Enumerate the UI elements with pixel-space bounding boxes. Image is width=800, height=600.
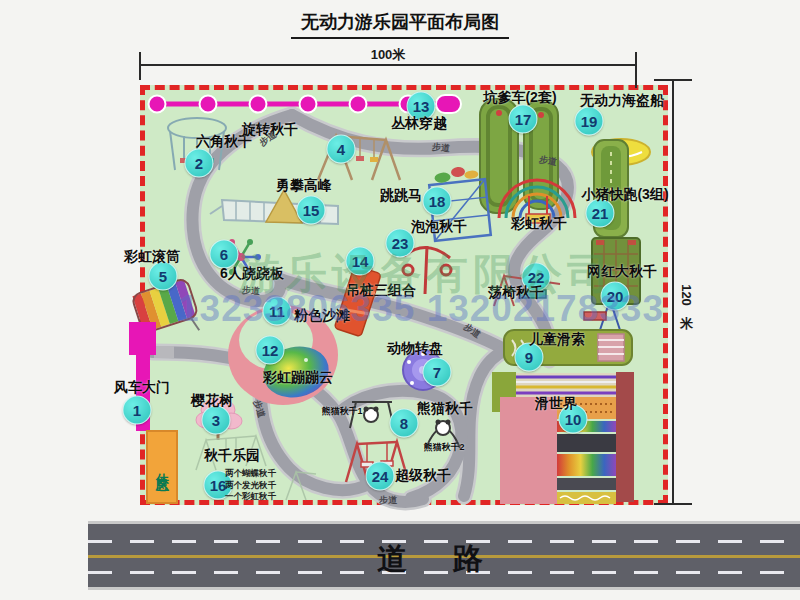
road-label: 道路 <box>377 539 529 580</box>
attraction-marker-17[interactable]: 17 <box>509 105 538 134</box>
park-map-area <box>140 85 668 505</box>
swing-note-line: 一个彩虹秋千 <box>225 491 276 503</box>
page-title: 无动力游乐园平面布局图 <box>291 10 509 39</box>
dimension-line-right <box>672 80 674 505</box>
attraction-marker-11[interactable]: 11 <box>263 297 292 326</box>
attraction-marker-2[interactable]: 2 <box>185 149 214 178</box>
dimension-tick-right-bottom <box>654 503 692 505</box>
attraction-marker-10[interactable]: 10 <box>559 405 588 434</box>
attraction-marker-14[interactable]: 14 <box>346 247 375 276</box>
attraction-marker-6[interactable]: 6 <box>210 240 239 269</box>
dimension-tick-right-top <box>654 79 692 81</box>
attraction-marker-3[interactable]: 3 <box>202 406 231 435</box>
swing-note-line: 两个蝴蝶秋千 <box>225 468 276 480</box>
attraction-marker-9[interactable]: 9 <box>515 343 544 372</box>
attraction-marker-23[interactable]: 23 <box>386 229 415 258</box>
attraction-marker-22[interactable]: 22 <box>522 263 551 292</box>
road: 道路 <box>88 521 800 590</box>
dimension-tick-top-left <box>139 52 141 80</box>
attraction-marker-12[interactable]: 12 <box>256 336 285 365</box>
attraction-marker-20[interactable]: 20 <box>601 282 630 311</box>
attraction-marker-1[interactable]: 1 <box>123 396 152 425</box>
attraction-marker-8[interactable]: 8 <box>390 409 419 438</box>
dimension-tick-top-right <box>635 52 637 88</box>
attraction-marker-5[interactable]: 5 <box>149 262 178 291</box>
swing-note-line: 两个发光秋千 <box>225 480 276 492</box>
attraction-marker-7[interactable]: 7 <box>423 358 452 387</box>
attraction-marker-24[interactable]: 24 <box>366 462 395 491</box>
dimension-label-100m: 100米 <box>371 46 406 64</box>
attraction-marker-15[interactable]: 15 <box>297 196 326 225</box>
dimension-label-120m: 120米 <box>677 284 695 306</box>
rest-area-box: 休息区 <box>146 430 178 504</box>
attraction-marker-21[interactable]: 21 <box>586 199 615 228</box>
dimension-line-top <box>140 64 636 66</box>
attraction-marker-19[interactable]: 19 <box>575 107 604 136</box>
attraction-marker-13[interactable]: 13 <box>407 92 436 121</box>
attraction-marker-4[interactable]: 4 <box>327 135 356 164</box>
attraction-marker-18[interactable]: 18 <box>423 187 452 216</box>
swing-park-notes: 两个蝴蝶秋千两个发光秋千一个彩虹秋千 <box>225 468 276 503</box>
rest-area-label: 休息区 <box>153 463 171 472</box>
